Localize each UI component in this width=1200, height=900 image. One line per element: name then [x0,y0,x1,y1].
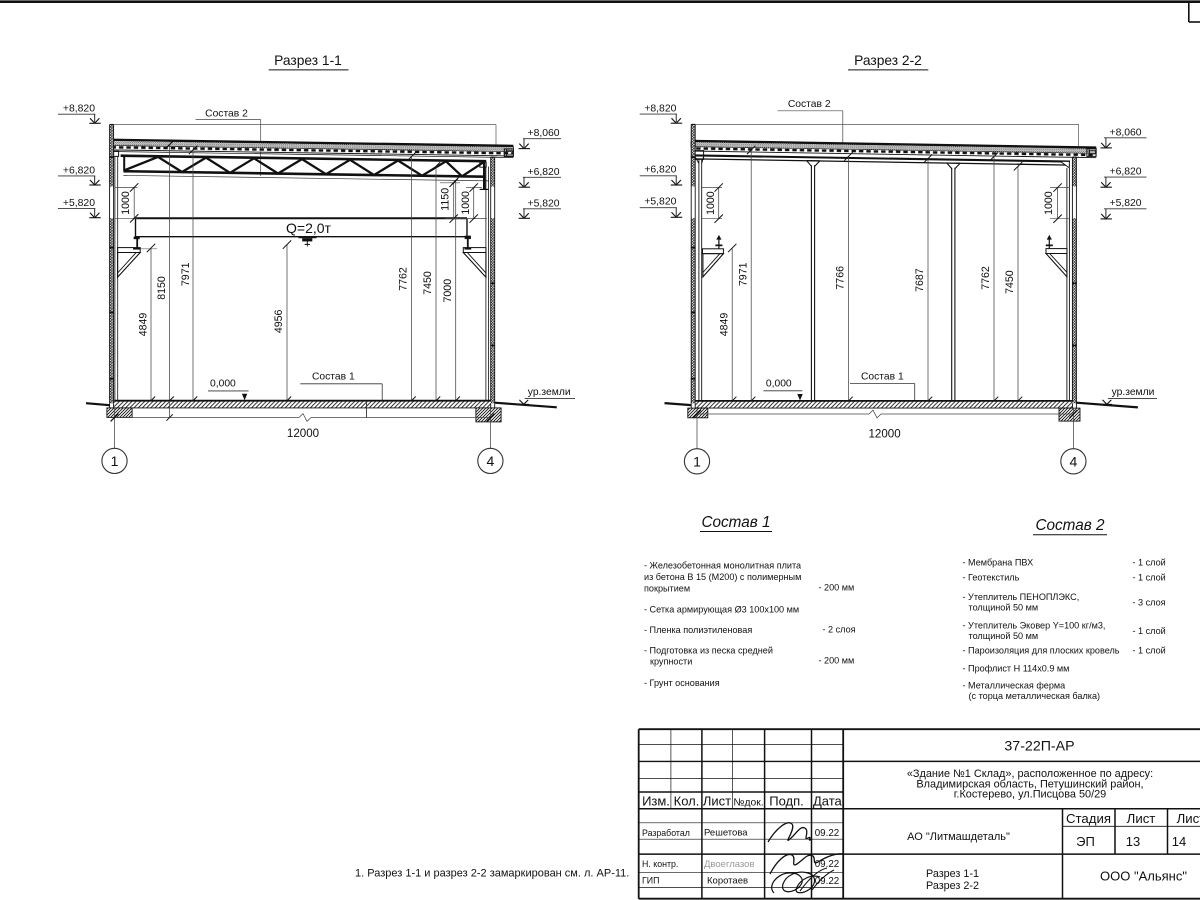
svg-text:7000: 7000 [442,279,454,303]
svg-text:- Утеплитель ПЕНОПЛЭКС,: - Утеплитель ПЕНОПЛЭКС, [963,592,1080,602]
svg-text:1000: 1000 [705,191,717,215]
svg-text:Кол.: Кол. [674,794,700,809]
svg-text:Двоеглазов: Двоеглазов [704,859,755,870]
svg-text:ур.земли: ур.земли [528,387,571,398]
svg-text:7762: 7762 [980,266,992,290]
svg-text:- 1 слой: - 1 слой [1133,558,1166,568]
svg-text:Дата: Дата [813,794,843,809]
svg-text:- 3 слоя: - 3 слоя [1133,597,1166,607]
svg-text:Коротаев: Коротаев [707,875,748,886]
svg-text:- Грунт основания: - Грунт основания [644,678,720,688]
svg-text:покрытием: покрытием [644,583,690,593]
svg-text:ООО "Альянс": ООО "Альянс" [1100,869,1187,884]
svg-text:- Пленка полиэтиленовая: - Пленка полиэтиленовая [644,625,752,635]
svg-text:- Профлист Н 114x0.9 мм: - Профлист Н 114x0.9 мм [963,664,1070,674]
svg-text:13: 13 [1126,834,1140,849]
svg-text:1: 1 [111,453,119,469]
svg-text:г.Костерево, ул.Писцова 50/29: г.Костерево, ул.Писцова 50/29 [954,789,1106,801]
svg-text:7766: 7766 [835,266,847,290]
svg-text:- 2 слоя: - 2 слоя [823,625,856,635]
svg-text:толщиной 50 мм: толщиной 50 мм [969,603,1039,613]
svg-text:+8,820: +8,820 [644,104,676,115]
svg-text:Состав 2: Состав 2 [1035,517,1105,534]
svg-text:ЭП: ЭП [1076,834,1095,849]
svg-text:7450: 7450 [422,271,434,295]
svg-text:- 1 слой: - 1 слой [1133,573,1166,583]
svg-text:ур.земли: ур.земли [1112,387,1155,398]
svg-text:Листов: Листов [1177,811,1200,826]
svg-text:7450: 7450 [1004,270,1016,294]
svg-text:+6,820: +6,820 [644,165,676,176]
svg-text:- Пароизоляция для плоских кро: - Пароизоляция для плоских кровель [963,646,1120,656]
svg-text:+8,820: +8,820 [63,104,95,115]
svg-text:+5,820: +5,820 [644,197,676,208]
svg-text:4849: 4849 [137,313,149,337]
svg-text:+5,820: +5,820 [528,198,560,209]
svg-text:- Металлическая ферма: - Металлическая ферма [963,681,1067,691]
svg-text:7687: 7687 [914,268,926,292]
svg-text:- Сетка армирующая Ø3 100x100: - Сетка армирующая Ø3 100x100 мм [644,605,799,615]
svg-text:+8,060: +8,060 [1110,127,1142,138]
svg-text:1150: 1150 [440,188,452,211]
svg-text:+5,820: +5,820 [63,198,95,209]
svg-text:Подп.: Подп. [769,794,804,809]
svg-text:№док.: №док. [733,798,763,809]
svg-text:крупности: крупности [650,657,692,667]
svg-text:12000: 12000 [287,427,319,440]
svg-text:Состав 1: Состав 1 [312,372,355,383]
svg-text:- 200 мм: - 200 мм [819,656,855,666]
svg-text:Изм.: Изм. [642,794,670,809]
svg-text:Лист: Лист [703,794,731,809]
svg-text:Состав 2: Состав 2 [205,109,248,120]
svg-text:+6,820: +6,820 [63,165,95,176]
svg-text:из бетона В 15 (М200) с полиме: из бетона В 15 (М200) с полимерным [644,572,801,582]
svg-text:1000: 1000 [460,191,472,215]
svg-text:+8,060: +8,060 [528,128,560,139]
svg-text:7971: 7971 [737,262,749,286]
svg-text:14: 14 [1172,834,1186,849]
svg-text:толщиной 50 мм: толщиной 50 мм [969,631,1039,641]
svg-text:+6,820: +6,820 [528,167,560,178]
svg-text:- 1 слой: - 1 слой [1133,646,1166,656]
svg-text:7971: 7971 [180,262,192,286]
svg-text:Решетова: Решетова [704,828,748,839]
svg-text:09.22: 09.22 [815,828,840,839]
svg-text:8150: 8150 [156,276,168,300]
svg-text:1000: 1000 [120,191,132,215]
svg-text:- Мембрана ПВХ: - Мембрана ПВХ [963,558,1034,568]
svg-text:Разрез 1-1: Разрез 1-1 [274,53,342,68]
svg-text:4849: 4849 [718,313,730,337]
svg-text:37-22П-АР: 37-22П-АР [1004,739,1074,755]
svg-text:ГИП: ГИП [642,876,659,886]
svg-text:Стадия: Стадия [1066,811,1111,826]
svg-text:(с торца металлическая балка): (с торца металлическая балка) [969,691,1101,701]
svg-text:Состав 2: Состав 2 [788,99,831,110]
svg-text:+6,820: +6,820 [1110,167,1142,178]
svg-text:4: 4 [1070,453,1078,469]
svg-text:1: 1 [693,453,701,469]
svg-text:- 200 мм: - 200 мм [819,583,855,593]
svg-text:Разрез 2-2: Разрез 2-2 [854,53,922,68]
svg-text:Лист: Лист [1127,811,1156,826]
svg-text:- Железобетонная монолитная п: - Железобетонная монолитная плита [644,561,802,571]
svg-text:Разрез 1-1: Разрез 1-1 [926,868,979,880]
svg-text:+5,820: +5,820 [1110,198,1142,209]
svg-text:Н. контр.: Н. контр. [642,859,678,869]
svg-text:1. Разрез 1-1 и разрез 2-2 зам: 1. Разрез 1-1 и разрез 2-2 замаркирован … [355,867,629,879]
svg-text:7762: 7762 [398,267,410,291]
svg-text:АО "Литмашдеталь": АО "Литмашдеталь" [907,831,1010,843]
svg-text:- Утеплитель Эковер Y=100 кг/м: - Утеплитель Эковер Y=100 кг/м3, [963,621,1106,631]
svg-text:Состав 1: Состав 1 [701,514,770,531]
svg-text:1000: 1000 [1043,191,1055,215]
svg-text:Разрез 2-2: Разрез 2-2 [926,880,979,892]
svg-text:4: 4 [487,453,495,469]
svg-text:Состав 1: Состав 1 [861,372,904,383]
svg-text:0,000: 0,000 [766,378,792,389]
svg-text:12000: 12000 [868,427,900,440]
svg-text:0,000: 0,000 [210,379,236,390]
svg-text:4956: 4956 [273,310,285,334]
svg-text:Q=2,0т: Q=2,0т [286,220,332,236]
svg-text:- 1 слой: - 1 слой [1133,626,1166,636]
svg-text:- Подготовка из песка средней: - Подготовка из песка средней [644,646,773,656]
svg-text:Разработал: Разработал [642,828,690,838]
svg-text:- Геотекстиль: - Геотекстиль [963,573,1020,583]
